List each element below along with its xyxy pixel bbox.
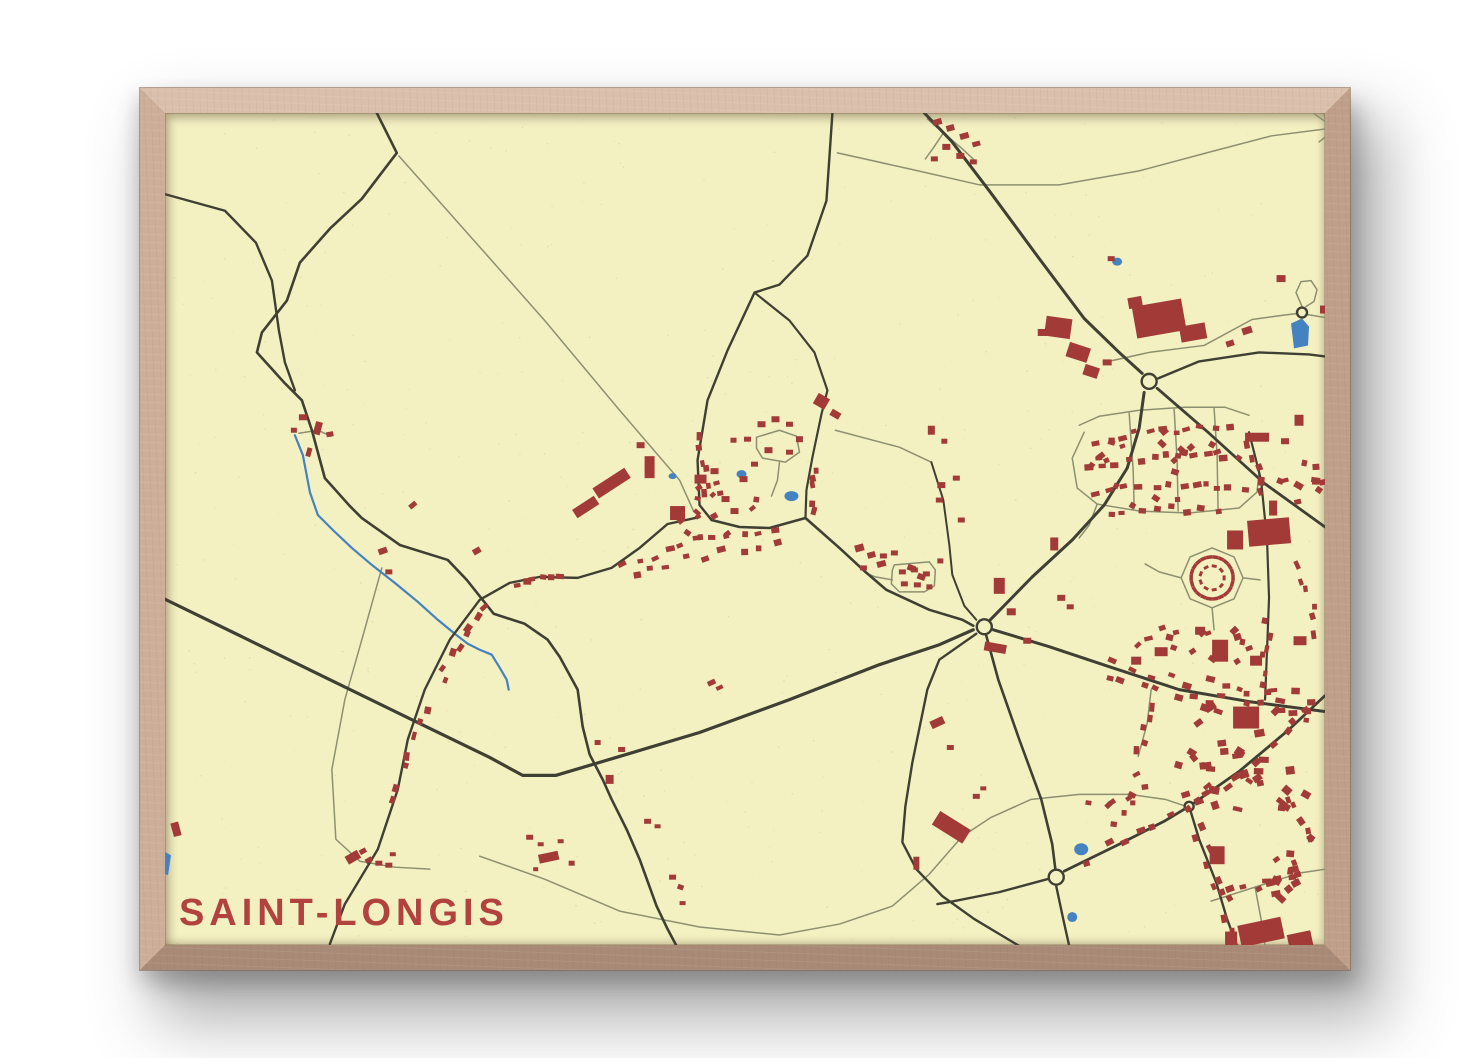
paper-speck [548,632,549,633]
paper-speck [322,449,323,450]
paper-speck [1023,664,1024,665]
paper-speck [963,927,964,928]
paper-speck [240,640,241,641]
major-road-rb3-w-road [937,879,1047,904]
building [756,545,762,551]
paper-speck [358,935,359,936]
paper-speck [785,755,786,756]
paper-speck [995,832,996,833]
building [796,436,803,442]
building [1140,724,1147,731]
building [1197,822,1206,832]
paper-speck [582,201,583,202]
building [1138,508,1146,514]
paper-speck [787,376,788,377]
building [1103,359,1112,365]
building [1119,483,1127,489]
paper-speck [1028,626,1030,628]
building [953,476,960,481]
paper-speck [620,162,621,163]
building [1233,658,1241,666]
paper-speck [813,737,814,738]
paper-speck [188,650,190,652]
paper-speck [1304,892,1305,893]
paper-speck [557,869,558,870]
paper-speck [694,854,695,855]
building [1230,569,1235,576]
building [1264,645,1270,653]
building [946,124,955,132]
building [1091,491,1100,498]
building [786,422,793,427]
building [1213,708,1223,716]
paper-speck [1027,411,1028,412]
paper-speck [782,692,783,693]
paper-speck [769,847,770,848]
paper-speck [899,323,901,325]
paper-speck [851,939,852,940]
building [1244,691,1250,697]
building [1154,506,1161,512]
paper-speck [910,487,911,488]
building [1183,509,1191,516]
building [1152,454,1159,460]
paper-speck [193,663,195,665]
paper-speck [769,376,770,377]
paper-speck [238,476,239,477]
paper-speck [1109,688,1110,689]
building [731,438,737,443]
paper-speck [998,564,999,565]
building [929,716,945,729]
paper-speck [978,664,979,665]
paper-speck [834,358,835,359]
paper-speck [315,525,316,526]
building [1189,693,1198,699]
paper-speck [215,437,216,438]
paper-speck [1251,736,1253,738]
building [901,581,908,586]
building [1229,928,1235,936]
paper-speck [447,711,448,712]
building [1222,683,1230,688]
building [1131,428,1138,434]
paper-speck [204,559,205,560]
paper-speck [611,818,612,819]
paper-speck [692,420,693,421]
paper-speck [1203,729,1204,730]
paper-speck [711,380,713,382]
building [731,508,739,514]
paper-speck [299,424,300,425]
paper-speck [1014,117,1016,119]
building [1284,884,1294,894]
paper-speck [436,789,437,790]
paper-speck [577,538,579,540]
paper-speck [403,434,404,435]
building [1224,484,1231,490]
building [1165,481,1172,488]
paper-speck [509,163,510,164]
paper-speck [490,148,491,149]
paper-speck [1184,754,1185,755]
paper-speck [353,730,354,731]
poster-frame: SAINT-LONGIS [140,88,1350,970]
pond [165,849,171,875]
paper-speck [946,863,947,864]
paper-speck [973,300,974,301]
paper-speck [820,832,821,833]
paper-speck [726,906,727,907]
building [936,498,943,503]
major-road-rb1-e-road [1158,352,1325,378]
building [1208,440,1216,448]
paper-speck [301,374,302,375]
building [899,569,906,574]
paper-speck [980,774,982,776]
paper-speck [772,260,774,262]
building [1213,425,1220,431]
paper-speck [1045,345,1046,346]
paper-speck [1035,631,1036,632]
paper-speck [932,853,933,854]
building [959,132,969,140]
paper-speck [319,304,320,305]
major-road-village-main [712,518,974,626]
building [676,542,683,548]
paper-speck [1171,284,1172,285]
paper-speck [725,393,726,394]
building [1223,575,1226,580]
paper-speck [1089,234,1091,236]
building [1315,486,1323,494]
building [1285,766,1295,775]
paper-speck [939,388,941,390]
building [1023,638,1031,644]
building [1254,768,1264,774]
paper-speck [521,371,522,372]
building [1309,612,1316,620]
paper-speck [1247,133,1248,134]
building [937,482,945,488]
building [1170,644,1177,651]
minor-road-hamlet-spur-2 [925,133,943,159]
paper-speck [674,728,675,729]
roundabout [1049,870,1064,885]
paper-speck [232,331,233,332]
paper-speck [508,500,510,502]
paper-speck [865,508,866,509]
building [1217,739,1226,746]
paper-speck [791,793,793,795]
building [1165,634,1174,642]
paper-speck [1026,370,1028,372]
paper-speck [1218,209,1219,210]
paper-speck [284,249,285,250]
paper-speck [405,408,406,409]
building [526,835,533,840]
paper-speck [1180,603,1181,604]
paper-speck [1291,544,1292,545]
building [569,861,575,866]
paper-speck [224,258,226,260]
paper-speck [891,751,893,753]
paper-speck [224,657,226,659]
building [913,857,919,870]
building [1168,503,1175,509]
paper-speck [874,590,876,592]
paper-speck [913,920,914,921]
building [753,496,759,502]
building [645,456,655,478]
paper-speck [198,443,199,444]
building [1225,884,1235,893]
paper-speck [425,422,426,423]
building [665,545,675,552]
paper-speck [925,553,926,554]
paper-speck [1265,300,1267,302]
paper-speck [1236,123,1237,124]
paper-speck [1019,423,1020,424]
building [771,527,780,533]
paper-speck [273,119,275,121]
building [1295,415,1304,426]
paper-speck [583,182,584,183]
paper-speck [839,242,840,243]
major-road-town-main-street [993,630,1325,712]
paper-speck [598,391,600,393]
major-road-town-s-street [1189,806,1237,945]
pond [1291,319,1309,349]
paper-speck [365,508,366,509]
building [1038,329,1047,336]
paper-speck [551,206,552,207]
paper-speck [1152,659,1154,661]
building [947,745,954,750]
paper-speck [507,628,509,630]
paper-speck [1056,491,1057,492]
paper-speck [529,827,530,828]
paper-speck [664,791,665,792]
major-road-rb2-rb3-road [986,636,1055,868]
paper-speck [1309,541,1311,543]
minor-roads-layer [299,113,1325,945]
building [1103,457,1110,464]
building [313,421,323,435]
paper-speck [683,842,685,844]
paper-speck [438,854,439,855]
paper-speck [435,132,436,133]
paper-speck [974,194,975,195]
paper-speck [362,866,363,867]
building [1180,483,1189,490]
paper-speck [1161,122,1163,124]
paper-speck [629,442,631,444]
paper-speck [670,449,671,450]
paper-speck [738,203,739,204]
paper-speck [346,831,347,832]
paper-speck [558,717,559,718]
building [1181,791,1191,799]
paper-speck [1100,403,1101,404]
building [1236,686,1243,692]
building [1196,424,1204,430]
building [1312,464,1319,471]
paper-speck [796,359,798,361]
paper-speck [1045,343,1046,344]
paper-speck [944,837,945,838]
building [592,468,630,499]
major-road-rb3-s-road [1056,886,1069,945]
building [637,558,643,563]
paper-speck [947,703,948,704]
building [814,468,819,474]
paper-speck [522,457,523,458]
building [1082,364,1100,379]
paper-speck [771,861,773,863]
paper-speck [1143,176,1144,177]
paper-speck [784,370,785,371]
paper-speck [987,911,989,913]
paper-speck [324,252,325,253]
paper-speck [562,380,563,381]
paper-speck [778,746,780,748]
building [1141,784,1148,790]
paper-speck [1102,316,1103,317]
paper-speck [1072,256,1074,258]
paper-speck [669,534,670,535]
paper-speck [669,119,670,120]
building [742,531,748,537]
paper-speck [641,619,643,621]
paper-speck [1052,270,1054,272]
paper-speck [1289,858,1291,860]
paper-speck [1169,782,1171,784]
map-title: SAINT-LONGIS [179,892,509,934]
building [1277,275,1286,282]
paper-speck [609,737,610,738]
paper-speck [1187,315,1189,317]
paper-speck [445,228,446,229]
building [1203,481,1208,486]
paper-speck [436,673,437,674]
building [1290,801,1296,808]
building [1189,452,1198,459]
paper-speck [1292,794,1294,796]
paper-speck [449,339,450,340]
paper-speck [1002,907,1003,908]
building [1242,487,1249,493]
building [1144,635,1153,641]
building [449,648,457,657]
paper-speck [968,873,969,874]
building [644,819,651,824]
building [1119,443,1126,449]
building [359,847,368,855]
building [385,863,392,868]
paper-speck [937,656,939,658]
building [1129,502,1137,510]
paper-speck [862,455,863,456]
map-area: SAINT-LONGIS [165,113,1325,945]
paper-speck [735,339,736,340]
building [926,584,932,589]
paper-speck [364,361,366,363]
paper-speck [704,330,705,331]
building [378,547,389,556]
paper-speck [278,714,279,715]
building [1269,501,1277,516]
paper-speck [1209,841,1210,842]
paper-speck [555,626,557,628]
building [751,462,758,467]
building [1294,636,1307,645]
paper-speck [1220,718,1221,719]
paper-speck [1135,347,1136,348]
building [1134,484,1142,490]
paper-speck [1316,627,1318,629]
building [754,531,761,536]
building [709,491,716,498]
paper-speck [872,296,873,297]
building [647,566,653,571]
building [655,824,661,828]
paper-speck [867,916,868,917]
building [1067,604,1074,609]
paper-speck [760,442,762,444]
paper-speck [964,429,966,431]
building [937,558,943,563]
paper-speck [1172,442,1173,443]
paper-speck [667,858,669,860]
paper-speck [1015,499,1017,501]
building [1235,454,1242,461]
building [980,786,986,790]
paper-speck [821,810,823,812]
building [633,571,641,579]
building [1288,710,1297,716]
paper-speck [1129,274,1131,276]
paper-speck [1090,282,1091,283]
paper-speck [783,680,785,682]
building [651,555,659,562]
paper-speck [460,213,461,214]
building [1197,505,1205,512]
paper-speck [560,477,561,478]
paper-speck [741,589,742,590]
paper-speck [618,802,619,803]
pond [1074,843,1088,855]
paper-speck [807,461,808,462]
building [299,414,307,420]
paper-speck [722,268,724,270]
paper-speck [1079,364,1080,365]
paper-speck [811,259,812,260]
paper-speck [300,276,302,278]
paper-speck [1280,287,1281,288]
minor-road-lasso-loop [1296,281,1317,307]
building [741,549,748,555]
building [984,641,1007,654]
major-road-village-west-road [330,517,700,944]
paper-speck [589,337,591,339]
paper-speck [286,202,287,203]
paper-speck [744,922,745,923]
paper-speck [347,389,348,390]
paper-speck [611,562,612,563]
building [661,565,669,570]
building [1257,700,1264,706]
